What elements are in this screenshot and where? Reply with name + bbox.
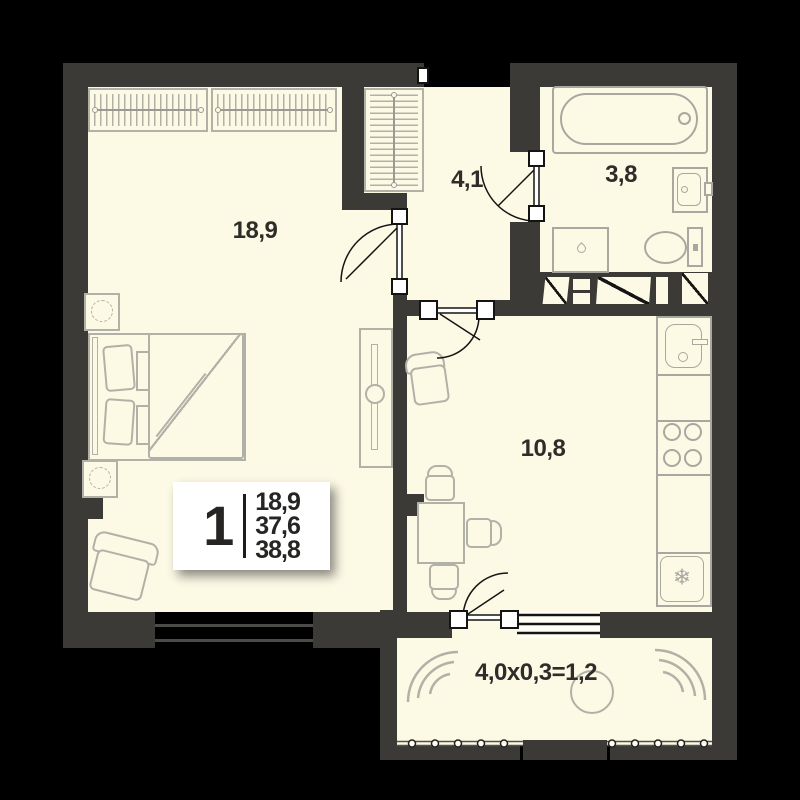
- entrance-jamb: [417, 67, 429, 84]
- bathroom-area-label: 3,8: [605, 161, 637, 189]
- rooms-count: 1: [203, 498, 232, 554]
- balcony-chair-right: [655, 650, 705, 700]
- apartment-area-value: 37,6: [255, 514, 300, 538]
- door-bathroom: [481, 151, 544, 221]
- info-divider: [243, 494, 246, 558]
- kitchen-area-label: 10,8: [521, 435, 566, 463]
- balcony-window-frame: [517, 615, 600, 633]
- floorplan-canvas: ❄ 1 18,9 37,6 38,8: [0, 0, 800, 800]
- balcony-chair-left: [408, 652, 458, 702]
- total-area-value: 38,8: [255, 538, 300, 562]
- apartment-info-box: 1 18,9 37,6 38,8: [173, 482, 330, 570]
- living-area-value: 18,9: [255, 490, 300, 514]
- bedroom-area-label: 18,9: [233, 217, 278, 245]
- door-bedroom: [341, 209, 407, 294]
- hallway-area-label: 4,1: [451, 166, 483, 194]
- plan-symbols-overlay: [0, 0, 800, 800]
- balcony-glazing: [397, 742, 712, 746]
- door-kitchen: [420, 301, 494, 358]
- balcony-area-label: 4,0x0,3=1,2: [475, 659, 597, 687]
- door-balcony: [450, 573, 518, 628]
